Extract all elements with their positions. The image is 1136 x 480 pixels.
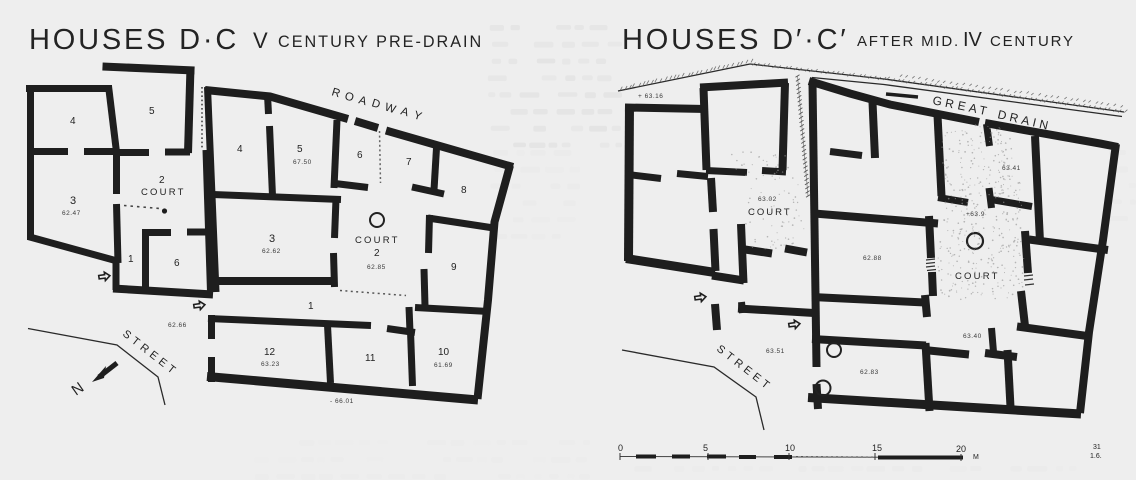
- svg-text:6: 6: [357, 150, 363, 161]
- svg-text:20: 20: [956, 444, 966, 454]
- svg-text:11: 11: [365, 353, 376, 364]
- svg-text:+ 63.16: + 63.16: [638, 93, 663, 100]
- svg-text:10: 10: [438, 347, 450, 358]
- svg-text:COURT: COURT: [955, 271, 1000, 282]
- svg-text:31: 31: [1093, 444, 1101, 451]
- svg-text:COURT: COURT: [355, 235, 400, 246]
- svg-text:67.50: 67.50: [293, 159, 312, 166]
- svg-text:3: 3: [269, 233, 275, 245]
- svg-text:5: 5: [297, 144, 303, 155]
- svg-text:0: 0: [618, 443, 623, 453]
- svg-text:M: M: [973, 454, 979, 461]
- svg-text:62.62: 62.62: [262, 248, 281, 255]
- svg-text:8: 8: [461, 185, 467, 196]
- svg-text:IV: IV: [963, 29, 983, 51]
- svg-text:1: 1: [308, 301, 314, 312]
- svg-text:62.47: 62.47: [62, 210, 81, 217]
- svg-text:15: 15: [872, 443, 882, 453]
- svg-text:V: V: [253, 28, 268, 53]
- svg-text:4: 4: [70, 116, 76, 127]
- svg-text:61.69: 61.69: [434, 362, 453, 369]
- svg-text:- 66.01: - 66.01: [330, 398, 354, 405]
- svg-text:7: 7: [406, 157, 412, 168]
- svg-text:62.85: 62.85: [367, 264, 386, 271]
- svg-text:9: 9: [451, 262, 457, 273]
- svg-text:63.40: 63.40: [963, 333, 982, 340]
- svg-text:62.88: 62.88: [863, 255, 882, 262]
- svg-text:+63.9: +63.9: [966, 211, 985, 218]
- svg-text:10: 10: [785, 443, 795, 453]
- svg-text:1.6.: 1.6.: [1090, 453, 1102, 460]
- svg-text:3: 3: [70, 195, 76, 207]
- svg-text:5: 5: [703, 443, 708, 453]
- svg-text:63.41: 63.41: [1002, 165, 1021, 172]
- svg-text:63.51: 63.51: [766, 348, 785, 355]
- svg-text:62.66: 62.66: [168, 322, 187, 329]
- svg-text:HOUSES D·C: HOUSES D·C: [29, 24, 239, 56]
- svg-text:62.83: 62.83: [860, 369, 879, 376]
- svg-text:AFTER MID.: AFTER MID.: [857, 33, 960, 50]
- svg-text:CENTURY: CENTURY: [990, 33, 1075, 50]
- svg-text:6: 6: [174, 258, 180, 269]
- svg-text:CENTURY PRE-DRAIN: CENTURY PRE-DRAIN: [278, 33, 483, 51]
- svg-text:4: 4: [237, 144, 243, 155]
- svg-text:2: 2: [159, 175, 165, 186]
- svg-text:COURT: COURT: [141, 187, 186, 198]
- svg-text:1: 1: [128, 254, 134, 265]
- svg-text:63.23: 63.23: [261, 361, 280, 368]
- svg-text:5: 5: [149, 106, 155, 117]
- svg-text:63.02: 63.02: [758, 196, 777, 203]
- svg-text:HOUSES D′·C′: HOUSES D′·C′: [622, 24, 849, 56]
- svg-text:2: 2: [374, 248, 380, 259]
- svg-text:12: 12: [264, 347, 276, 358]
